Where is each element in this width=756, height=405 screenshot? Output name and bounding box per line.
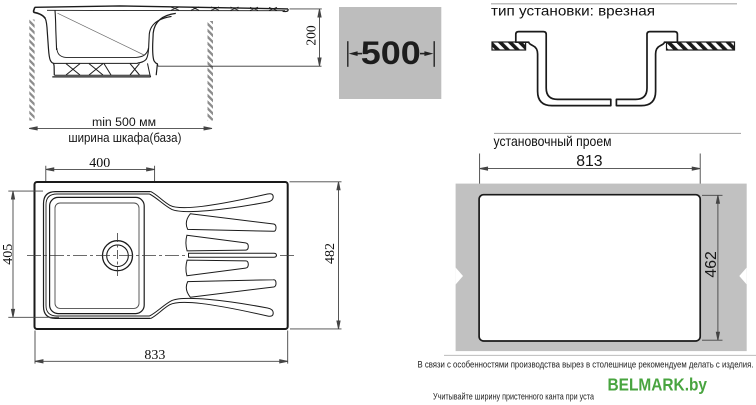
svg-text:тип установки: врезная: тип установки: врезная (491, 3, 655, 19)
svg-text:200: 200 (303, 25, 318, 46)
svg-text:min 500 мм: min 500 мм (92, 115, 156, 129)
svg-text:400: 400 (89, 156, 110, 171)
svg-text:833: 833 (144, 348, 165, 363)
svg-text:500: 500 (361, 35, 421, 71)
svg-text:ширина шкафа(база): ширина шкафа(база) (68, 130, 181, 145)
svg-text:462: 462 (703, 251, 720, 277)
svg-text:Учитывайте ширину пристенного: Учитывайте ширину пристенного канта при … (433, 392, 594, 403)
svg-text:BELMARK.by: BELMARK.by (608, 374, 708, 394)
svg-text:установочный проем: установочный проем (494, 133, 612, 149)
svg-text:813: 813 (576, 153, 603, 170)
svg-text:482: 482 (323, 243, 338, 264)
svg-text:405: 405 (1, 244, 16, 265)
svg-text:В связи с особенностями произв: В связи с особенностями производства выр… (418, 360, 754, 371)
